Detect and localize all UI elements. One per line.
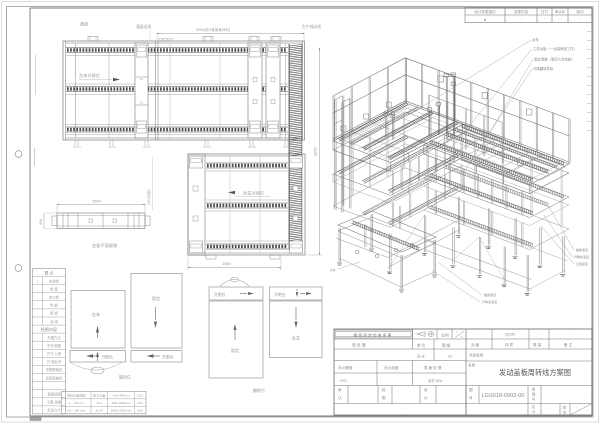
svg-text:台车: 台车 — [532, 37, 539, 42]
svg-text:淬火硬度: 淬火硬度 — [338, 365, 353, 370]
svg-text:毫 米: 毫 米 — [417, 354, 425, 359]
svg-text:·: · — [538, 332, 539, 337]
svg-text:400~1000mm: 400~1000mm — [111, 401, 130, 405]
svg-text:理: 理 — [532, 392, 536, 397]
svg-text:图: 图 — [382, 396, 386, 400]
svg-text:·: · — [560, 354, 561, 359]
svg-text:·: · — [551, 406, 552, 411]
svg-text:1: 1 — [456, 330, 458, 334]
svg-text:检印: 检印 — [576, 9, 584, 14]
svg-text:尺·轴孔号: 尺·轴孔号 — [47, 359, 62, 364]
svg-text:升降处滚道: 升降处滚道 — [482, 299, 497, 304]
svg-text:±0.3: ±0.3 — [137, 401, 143, 405]
svg-text:认: 认 — [338, 395, 342, 400]
svg-text:安全性: 安全性 — [49, 278, 60, 283]
svg-text:固定: 固定 — [231, 347, 239, 354]
svg-text:台车对接位: 台车对接位 — [79, 72, 100, 79]
svg-text:设计变更指引: 设计变更指引 — [474, 9, 496, 14]
svg-text:·: · — [478, 332, 479, 337]
svg-text:表面处理: 表面处理 — [47, 392, 61, 397]
svg-text:加工公差: 加工公差 — [93, 393, 105, 398]
svg-text:批: 批 — [563, 405, 567, 410]
svg-text:±0.15: ±0.15 — [95, 409, 103, 413]
svg-text:精度测定检查表要: 精度测定检查表要 — [353, 332, 392, 337]
svg-text:台车: 台车 — [330, 268, 336, 272]
svg-text:项目名称: 项目名称 — [469, 353, 484, 358]
svg-text:开閉台: 开閉台 — [162, 355, 174, 360]
svg-text:精 度: 精 度 — [50, 286, 58, 291]
svg-text:HRC: HRC — [340, 379, 348, 383]
svg-text:±0.1: ±0.1 — [96, 401, 102, 405]
svg-text:开閉台: 开閉台 — [214, 292, 226, 297]
svg-text:LGS018-0902-00: LGS018-0902-00 — [482, 393, 525, 399]
svg-text:·: · — [587, 410, 588, 414]
svg-text:·: · — [548, 393, 549, 398]
svg-text:新 颖: 新 颖 — [50, 311, 58, 316]
svg-text:未标公差范围: 未标公差范围 — [67, 393, 86, 398]
svg-text:生产线边线: 生产线边线 — [302, 24, 321, 29]
svg-text:·: · — [559, 17, 561, 23]
svg-text:单 位: 单 位 — [417, 343, 426, 348]
svg-text:±0.5: ±0.5 — [137, 409, 143, 413]
svg-text:热 处 理: 热 处 理 — [352, 343, 366, 348]
svg-text:台板平面规格: 台板平面规格 — [92, 242, 118, 249]
svg-text:品 番: 品 番 — [471, 342, 480, 347]
svg-text:通道: 通道 — [80, 21, 88, 27]
svg-text:性 能: 性 能 — [50, 303, 58, 308]
svg-text:要 点: 要 点 — [44, 269, 53, 275]
svg-text:买家配轴号: 买家配轴号 — [46, 375, 63, 380]
svg-text:发动盖板周转线方案图: 发动盖板周转线方案图 — [499, 368, 571, 377]
svg-text:图 幅: 图 幅 — [442, 343, 451, 348]
svg-text:台车对接位: 台车对接位 — [243, 190, 264, 197]
svg-text:材 质: 材 质 — [505, 342, 514, 347]
svg-text:·: · — [575, 332, 576, 337]
svg-text:Q235: Q235 — [505, 332, 516, 337]
svg-text:淬火深度: 淬火深度 — [384, 365, 399, 370]
svg-text:翻转位: 翻转位 — [253, 387, 265, 393]
svg-text:·: · — [576, 405, 577, 409]
svg-text:▲: ▲ — [483, 18, 487, 22]
svg-text:1650: 1650 — [222, 261, 232, 266]
svg-text:·: · — [520, 17, 522, 23]
svg-text:·: · — [392, 378, 393, 383]
svg-text:干涉·缺胶: 干涉·缺胶 — [47, 343, 62, 348]
svg-text:返重 480k: 返重 480k — [428, 378, 443, 383]
svg-text:检: 检 — [382, 387, 386, 392]
svg-text:300: 300 — [39, 219, 43, 225]
svg-text:外围方法: 外围方法 — [47, 335, 61, 340]
svg-text:开閉台: 开閉台 — [274, 292, 286, 297]
svg-text:·: · — [544, 17, 546, 23]
svg-text:6: 6 — [461, 335, 463, 339]
svg-text:承认印: 承认印 — [555, 9, 566, 14]
svg-text:工件台板（一台装两张工件）: 工件台板（一台装两张工件） — [533, 46, 577, 51]
svg-text:固定: 固定 — [152, 295, 160, 302]
svg-text:·: · — [579, 17, 581, 23]
svg-text:固定滑道（满足七台台板）: 固定滑道（满足七台台板） — [534, 57, 575, 62]
svg-text:区: 区 — [532, 405, 536, 409]
svg-text:±0.2: ±0.2 — [137, 394, 143, 398]
svg-text:通道边线: 通道边线 — [136, 24, 151, 29]
svg-text:号: 号 — [532, 397, 535, 402]
svg-text:升降翻转导轨: 升降翻转导轨 — [533, 66, 554, 71]
svg-text:码: 码 — [563, 410, 566, 415]
svg-text:比例: 比例 — [441, 333, 449, 338]
svg-text:120~400mm: 120~400mm — [112, 394, 130, 398]
svg-text:3850: 3850 — [313, 146, 318, 156]
svg-text:备 注: 备 注 — [564, 342, 573, 347]
svg-text:1500: 1500 — [92, 199, 102, 204]
svg-text:○: ○ — [36, 279, 38, 283]
svg-text:升降处滚道: 升降处滚道 — [574, 254, 589, 259]
svg-text:号: 号 — [469, 395, 473, 400]
svg-text:·: · — [400, 406, 401, 411]
svg-text:台车: 台车 — [92, 311, 100, 318]
svg-text:表 面 处 理: 表 面 处 理 — [424, 365, 442, 370]
svg-text:变更内容: 变更内容 — [514, 9, 529, 14]
svg-text:适 用: 适 用 — [50, 319, 58, 324]
svg-text:名称: 名称 — [468, 363, 476, 368]
svg-text:触类滚道: 触类滚道 — [484, 292, 496, 297]
svg-text:检图内容: 检图内容 — [41, 326, 57, 332]
svg-text:计: 计 — [424, 395, 428, 400]
svg-text:标注尺寸: 标注尺寸 — [47, 408, 61, 413]
svg-text:干整·拼接: 干整·拼接 — [47, 400, 62, 405]
svg-text:管: 管 — [532, 387, 535, 392]
svg-text:旋转位: 旋转位 — [119, 374, 131, 380]
svg-text:台车: 台车 — [292, 335, 300, 342]
svg-text:加工性: 加工性 — [49, 295, 60, 300]
svg-text:开閉台: 开閉台 — [102, 355, 114, 360]
svg-text:1501(挡距): 1501(挡距) — [146, 189, 151, 205]
svg-text:数 量: 数 量 — [533, 342, 542, 347]
svg-text:1 ~ 30 mm: 1 ~ 30 mm — [69, 401, 84, 405]
svg-text:过渡滚道: 过渡滚道 — [576, 261, 588, 266]
svg-text:尺寸·公差: 尺寸·公差 — [47, 351, 62, 356]
svg-text:2200(设计某某某54列): 2200(设计某某某54列) — [196, 27, 230, 32]
svg-text:日付: 日付 — [541, 9, 549, 14]
svg-text:设: 设 — [424, 387, 428, 392]
svg-text:图: 图 — [469, 388, 473, 392]
svg-text:A3: A3 — [448, 355, 452, 359]
svg-text:关联配轴连: 关联配轴连 — [46, 367, 63, 372]
svg-text:1000~2000mm: 1000~2000mm — [111, 409, 132, 413]
svg-text:承: 承 — [338, 387, 342, 392]
svg-text:30 ~ 100 mm: 30 ~ 100 mm — [67, 409, 86, 413]
svg-text:分: 分 — [532, 409, 536, 414]
svg-text:触类滚道: 触类滚道 — [576, 247, 588, 252]
